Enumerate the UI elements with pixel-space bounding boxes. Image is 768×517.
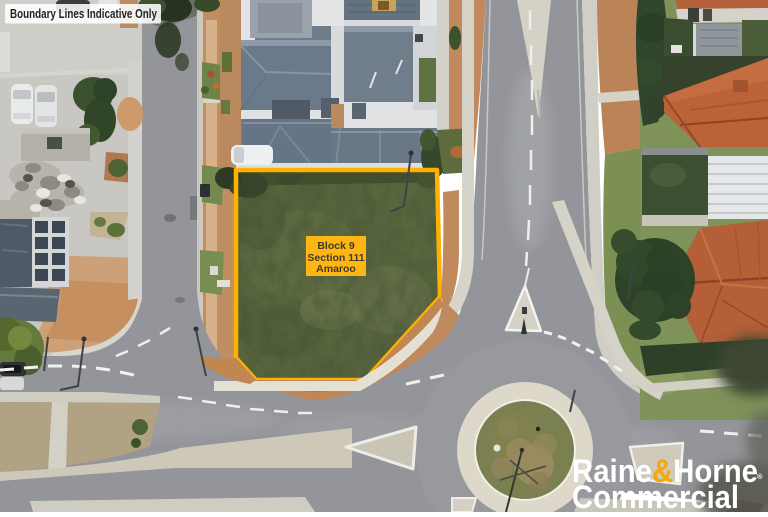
svg-text:Commercial: Commercial	[572, 479, 739, 512]
svg-text:Block 9: Block 9	[317, 240, 355, 252]
svg-text:®: ®	[757, 472, 763, 481]
svg-text:Boundary Lines Indicative Only: Boundary Lines Indicative Only	[10, 7, 157, 21]
svg-text:Amaroo: Amaroo	[316, 263, 356, 275]
